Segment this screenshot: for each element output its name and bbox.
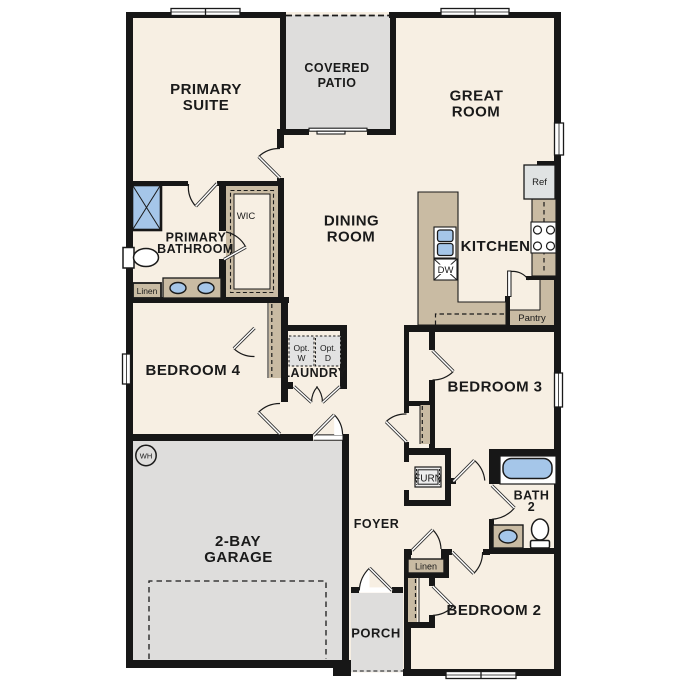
svg-text:2-BAY: 2-BAY: [215, 533, 261, 550]
svg-text:2: 2: [528, 500, 535, 514]
svg-text:Opt.: Opt.: [293, 343, 309, 353]
svg-text:GARAGE: GARAGE: [204, 549, 273, 566]
svg-text:Linen: Linen: [415, 562, 437, 572]
svg-text:PORCH: PORCH: [351, 626, 400, 641]
svg-text:Linen: Linen: [137, 286, 158, 296]
svg-text:ROOM: ROOM: [327, 229, 375, 246]
svg-text:WIC: WIC: [237, 211, 256, 222]
svg-text:BEDROOM 4: BEDROOM 4: [146, 362, 241, 379]
svg-text:ROOM: ROOM: [452, 104, 500, 121]
svg-text:PRIMARY: PRIMARY: [170, 81, 242, 98]
svg-text:BEDROOM 2: BEDROOM 2: [447, 602, 542, 619]
svg-text:Pantry: Pantry: [518, 313, 546, 324]
svg-text:Ref: Ref: [532, 177, 547, 188]
svg-text:WH: WH: [140, 452, 153, 461]
svg-text:W: W: [297, 353, 305, 363]
svg-text:COVERED: COVERED: [304, 61, 369, 75]
svg-text:PATIO: PATIO: [318, 76, 357, 90]
svg-text:D: D: [325, 353, 331, 363]
svg-text:GREAT: GREAT: [450, 88, 504, 105]
svg-text:LAUNDRY: LAUNDRY: [282, 366, 346, 380]
svg-text:FOYER: FOYER: [354, 517, 400, 531]
svg-text:Opt.: Opt.: [320, 343, 336, 353]
svg-text:FURN: FURN: [414, 474, 442, 485]
svg-text:SUITE: SUITE: [183, 97, 229, 114]
svg-text:BATHROOM: BATHROOM: [157, 242, 234, 256]
svg-text:KITCHEN: KITCHEN: [461, 238, 531, 255]
svg-text:DINING: DINING: [324, 213, 379, 230]
svg-text:BEDROOM 3: BEDROOM 3: [448, 379, 543, 396]
svg-text:DW: DW: [438, 265, 454, 276]
